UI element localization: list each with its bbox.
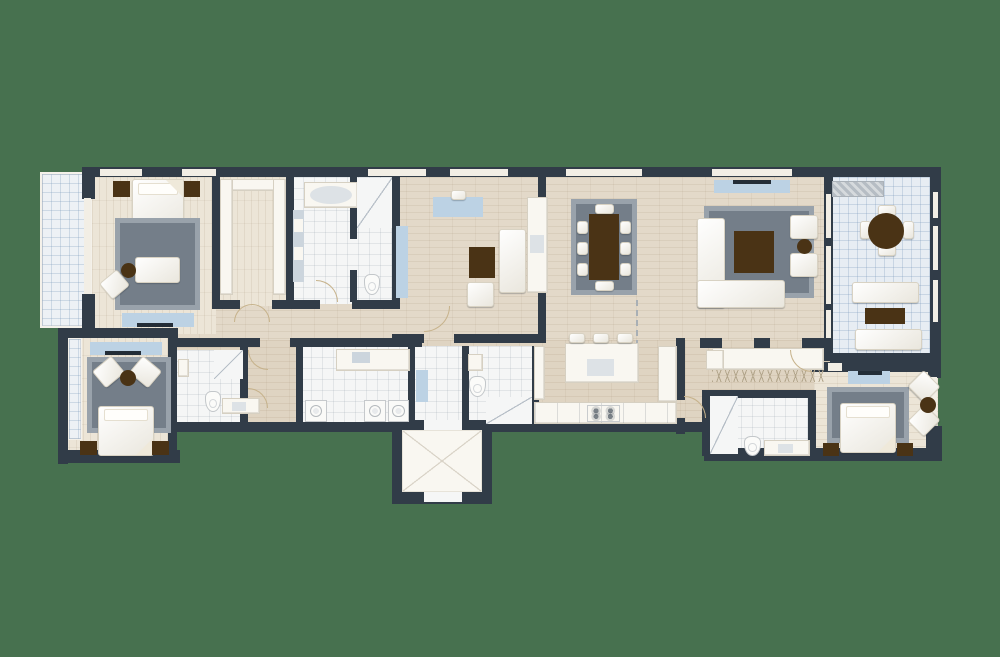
study-coffee-table [469,247,495,278]
terrace-chaise-1 [852,282,919,303]
master-tv [137,323,173,327]
study-sofa [499,229,526,293]
wall-master-closet [212,177,220,305]
living-tv [733,180,771,184]
master-sink-2 [294,247,303,260]
terrace-table [868,213,904,249]
kitchen-stool-3 [617,333,633,343]
window-sill-3 [368,169,426,176]
bedroom3-nightstand-left [823,443,839,456]
powder-shower [486,397,532,424]
apartment-floor-plan [0,0,1000,657]
wall-strip-bottom-west [174,422,398,432]
window-terrace-2 [826,246,831,304]
hall-dashed-line [636,300,638,346]
master-side-table [121,263,136,278]
foyer-bench [416,370,428,402]
kitchen-tall-cabinet-left [534,346,545,400]
laundry-item [352,352,370,363]
bathroom3-vanity-sink [778,444,793,453]
dining-chair-l1 [577,221,588,234]
window-master-west [84,198,91,294]
powder-sink [468,354,483,371]
window-sill-5 [566,169,642,176]
window-right-2 [933,226,938,270]
hall-wardrobe-doors [712,370,824,382]
laundry-washer-2 [364,400,386,422]
master-nightstand-left [113,181,130,197]
laundry-washer-3 [388,400,409,422]
kitchen-tall-cabinet-right [658,346,677,402]
living-side-table [797,239,812,254]
wall-corridor-laundry [296,346,303,426]
bathroom2-vanity-sink [232,402,246,411]
wall-left-corner-top [82,167,95,199]
dining-chair-bottom [595,281,614,291]
wall-wardrobe-seg1 [700,338,722,348]
window-sill-6 [712,169,792,176]
hall3-cabinet [706,350,724,370]
dining-chair-l2 [577,242,588,255]
master-sofa [135,257,180,283]
kitchen-stool-1 [569,333,585,343]
dining-chair-top [595,204,614,214]
wall-master-bottom [58,328,178,338]
bedroom2-tv [105,351,141,355]
wall-wardrobe-seg3 [802,338,832,348]
elevator-rear-tab [424,492,462,502]
window-sill-2 [182,169,216,176]
living-armchair-2 [790,253,818,277]
bathroom3-shower [710,396,738,454]
study-media-panel [396,226,408,298]
window-right-1 [933,192,938,218]
bathtub-basin [310,186,352,204]
bedroom2-balcony [68,338,82,440]
terrace-coffee-table [865,308,905,324]
master-sink-1 [294,219,303,232]
closet-cabinet-right [273,179,286,295]
window-terrace-1 [826,194,831,238]
terrace-doormat [832,181,884,197]
kitchen-cooktop [587,405,620,422]
wall-hall-top-1 [212,300,240,309]
wall-strip-top-2 [290,338,422,347]
elevator-door [424,420,462,430]
living-armchair-1 [790,215,818,239]
bar-sink [530,235,544,253]
dining-chair-r1 [620,221,631,234]
door-bedroom3-terrace [828,363,842,371]
wall-bath-divider-b [350,270,357,302]
bedroom3-tv [858,371,882,375]
wall-study-bottom-b [454,334,546,343]
master-nightstand-right [183,181,200,197]
dining-table [589,214,619,280]
dining-chair-r2 [620,242,631,255]
study-desk [433,197,483,217]
dining-chair-r3 [620,263,631,276]
study-armchair [467,282,494,307]
terrace-chair-east [903,221,914,239]
wall-kitchen-right-b [676,418,685,434]
laundry-washer-1 [305,400,327,422]
window-sill-1 [100,169,142,176]
terrace-chaise-2 [855,329,922,350]
bedroom2-side-table [120,370,136,386]
kitchen-stool-2 [593,333,609,343]
bathroom2-shower [214,350,243,379]
master-shower [357,178,392,228]
bedroom3-bed [840,403,896,453]
wall-bedroom2-left [58,328,68,464]
kitchen-island-sink [587,359,614,376]
bedroom3-side-table [920,397,936,413]
study-desk-chair [451,190,466,200]
bedroom2-nightstand-left [80,441,97,455]
dining-chair-l3 [577,263,588,276]
floor-plan-canvas [0,0,1000,657]
bedroom2-nightstand-right [152,441,169,455]
wall-kitchen-right-a [676,338,685,400]
window-sill-4 [450,169,508,176]
closet-cabinet-left [220,179,233,295]
wall-wardrobe-seg2 [754,338,770,348]
elevator-cross-icon [402,430,482,492]
window-right-3 [933,280,938,322]
living-sofa-horizontal [697,280,785,308]
bathroom2-sink [178,359,189,377]
living-coffee-table [734,231,774,273]
wall-hall-top-2 [272,300,320,309]
wall-hall-top-3 [352,300,394,309]
laundry-counter [336,349,410,371]
bedroom3-nightstand-right [897,443,913,456]
bedroom2-bed [98,406,154,456]
